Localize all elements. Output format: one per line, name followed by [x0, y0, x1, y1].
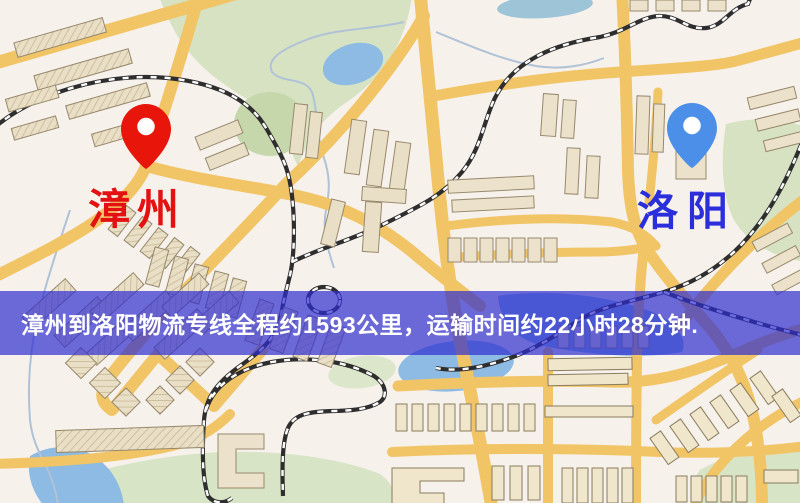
map-background	[0, 0, 800, 503]
banner-text: 漳州到洛阳物流专线全程约1593公里，运输时间约22小时28分钟.	[0, 306, 698, 340]
map-view: 漳州 洛阳 漳州到洛阳物流专线全程约1593公里，运输时间约22小时28分钟.	[0, 0, 800, 503]
origin-pin-icon[interactable]	[121, 104, 171, 169]
destination-label: 洛阳	[637, 177, 737, 237]
origin-label: 漳州	[88, 176, 186, 237]
destination-pin-icon[interactable]	[667, 103, 717, 168]
info-banner: 漳州到洛阳物流专线全程约1593公里，运输时间约22小时28分钟.	[0, 291, 800, 355]
